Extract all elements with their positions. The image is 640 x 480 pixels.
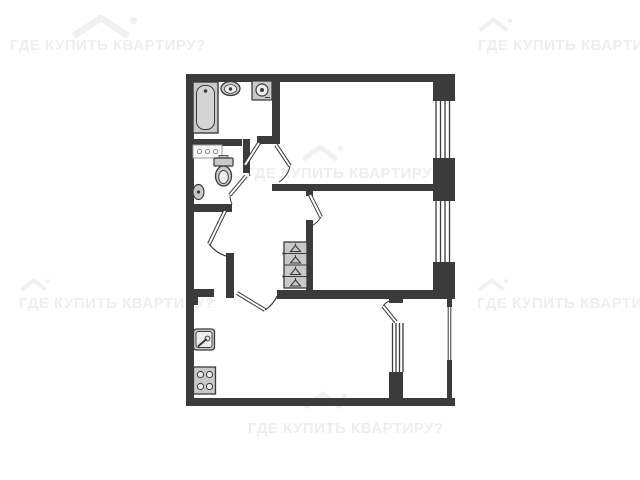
toilet [214, 156, 233, 187]
door-entrance [209, 211, 226, 256]
walls [186, 74, 455, 406]
room-bedroom-top [280, 82, 433, 184]
door-kitchen [237, 293, 277, 310]
wall-outer-bottom [186, 398, 455, 406]
door-bedroom-top [276, 145, 290, 182]
room-kitchen-living [194, 299, 389, 398]
wall-right-top [433, 74, 455, 101]
window-bedroom-top [436, 101, 450, 158]
wall-balcony-right-top [447, 299, 452, 307]
window-kitchen-balcony [393, 323, 404, 372]
wall-kitchen-corner-block [186, 289, 198, 305]
door-wc [230, 176, 246, 204]
screenshot-canvas: ГДЕ КУПИТЬ КВАРТИРУ? ГДЕ КУПИТЬ КВАРТИРУ… [0, 0, 640, 480]
windows [393, 101, 451, 372]
bathroom-sink [221, 82, 240, 96]
wall-wc-bottom [186, 204, 232, 212]
vanity [193, 145, 222, 158]
window-bedroom-middle [436, 201, 450, 262]
door-balcony [383, 301, 396, 322]
floor-plan [0, 0, 640, 480]
washing-machine [252, 81, 272, 100]
room-balcony [403, 303, 447, 398]
wall-balcony-partition-bottom [389, 372, 403, 398]
wardrobe [282, 242, 307, 288]
wall-balcony-partition-top [389, 290, 403, 303]
wall-bedroom-top-bottom [272, 184, 455, 191]
wall-kitchen-top-right [277, 290, 455, 299]
bathtub [193, 82, 218, 133]
room-bedroom-middle [313, 191, 433, 290]
stove [194, 367, 216, 394]
window-balcony-outer [448, 306, 451, 360]
wall-balcony-right-bottom [447, 360, 452, 398]
rooms [194, 82, 447, 398]
wall-outer-top [186, 74, 455, 82]
kitchen-sink [194, 329, 215, 350]
wash-basin [193, 185, 204, 200]
wall-hall-post [226, 253, 234, 298]
wall-bathroom-bedroom-divider [272, 74, 280, 139]
wall-right-mid [433, 158, 455, 201]
